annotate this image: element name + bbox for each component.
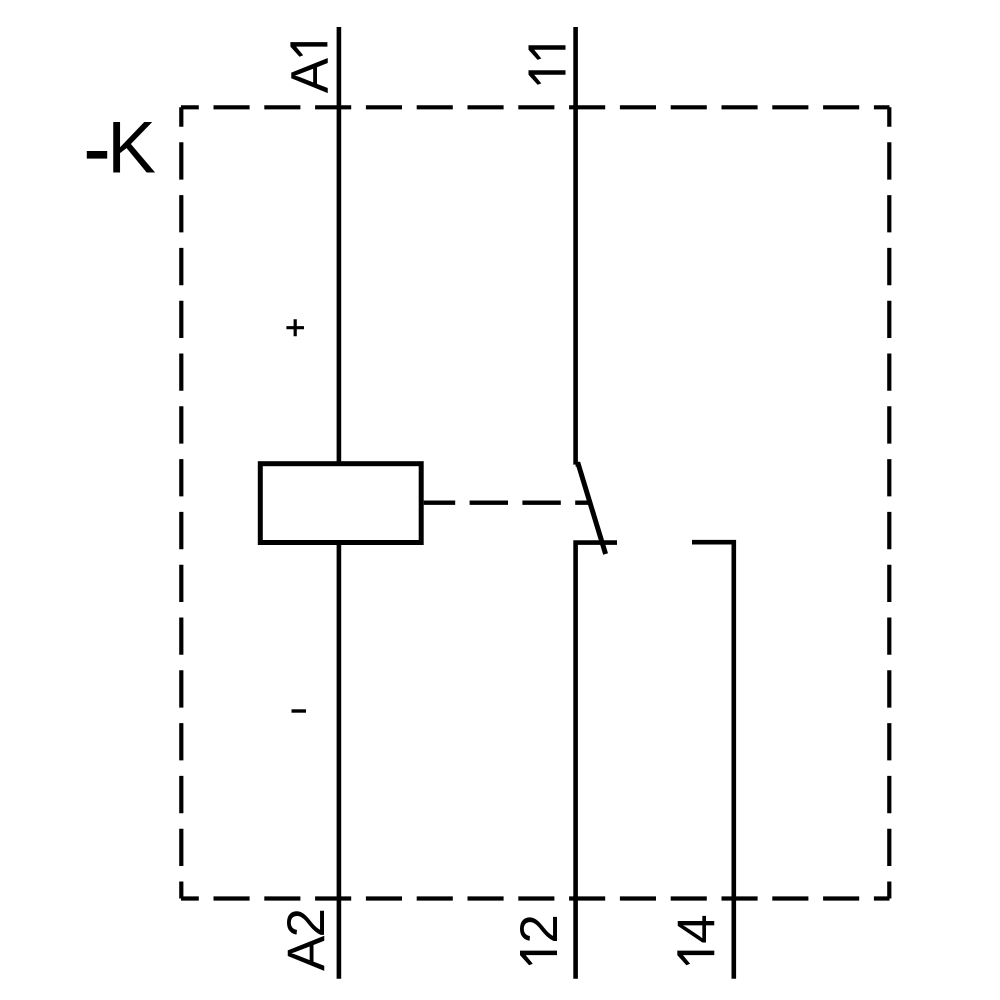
svg-text:2: 2 (277, 908, 336, 937)
svg-text:A: A (277, 935, 336, 971)
svg-text:A: A (280, 57, 339, 93)
svg-text:K: K (107, 108, 156, 189)
svg-text:2: 2 (510, 914, 569, 943)
svg-text:4: 4 (667, 914, 726, 943)
